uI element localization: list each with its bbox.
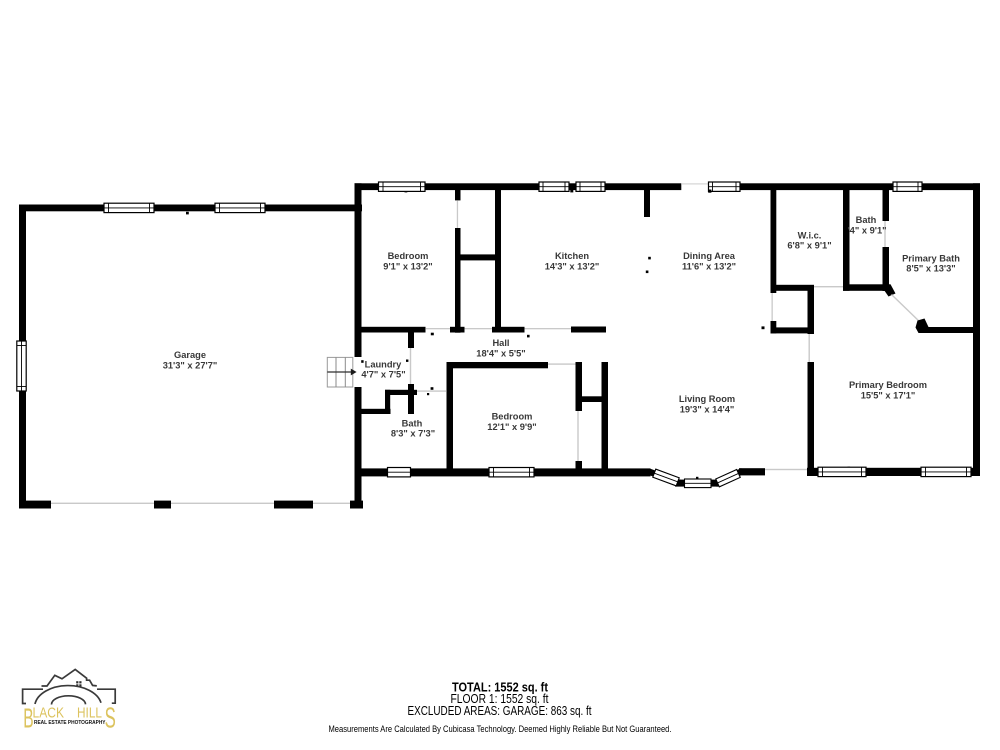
svg-text:EXCLUDED AREAS: GARAGE: 863 sq: EXCLUDED AREAS: GARAGE: 863 sq. ft — [408, 704, 592, 718]
svg-text:9'1" x 13'2": 9'1" x 13'2" — [383, 262, 432, 272]
svg-text:8'5" x 13'3": 8'5" x 13'3" — [906, 264, 955, 274]
svg-text:6'8" x 9'1": 6'8" x 9'1" — [787, 241, 831, 251]
svg-text:Bath: Bath — [402, 419, 423, 429]
svg-text:W.i.c.: W.i.c. — [798, 231, 822, 241]
svg-text:Hall: Hall — [492, 338, 509, 348]
svg-text:31'3" x 27'7": 31'3" x 27'7" — [163, 361, 218, 371]
svg-text:Living Room: Living Room — [679, 394, 735, 404]
svg-text:Garage: Garage — [174, 350, 206, 360]
svg-text:REAL ESTATE PHOTOGRAPHY: REAL ESTATE PHOTOGRAPHY — [34, 720, 106, 726]
svg-text:Laundry: Laundry — [365, 360, 403, 370]
svg-text:Dining Area: Dining Area — [683, 251, 736, 261]
svg-text:Measurements Are Calculated By: Measurements Are Calculated By Cubicasa … — [329, 724, 672, 734]
svg-text:Bedroom: Bedroom — [492, 412, 533, 422]
svg-text:4'7" x 7'5": 4'7" x 7'5" — [361, 370, 405, 380]
svg-text:12'1" x 9'9": 12'1" x 9'9" — [487, 422, 536, 432]
svg-text:15'5" x 17'1": 15'5" x 17'1" — [861, 391, 916, 401]
svg-text:Bath: Bath — [856, 215, 877, 225]
svg-text:8'3" x 7'3": 8'3" x 7'3" — [391, 429, 435, 439]
svg-text:Primary Bath: Primary Bath — [902, 254, 960, 264]
svg-text:19'3" x 14'4": 19'3" x 14'4" — [680, 405, 735, 415]
svg-text:Kitchen: Kitchen — [555, 251, 589, 261]
svg-text:11'6" x 13'2": 11'6" x 13'2" — [682, 262, 736, 272]
svg-text:S: S — [105, 703, 116, 735]
svg-text:14'3" x 13'2": 14'3" x 13'2" — [545, 262, 600, 272]
svg-text:18'4" x 5'5": 18'4" x 5'5" — [476, 349, 525, 359]
svg-text:'4" x 9'1": '4" x 9'1" — [847, 226, 886, 236]
svg-text:Bedroom: Bedroom — [388, 251, 429, 261]
svg-text:Primary Bedroom: Primary Bedroom — [849, 380, 927, 390]
